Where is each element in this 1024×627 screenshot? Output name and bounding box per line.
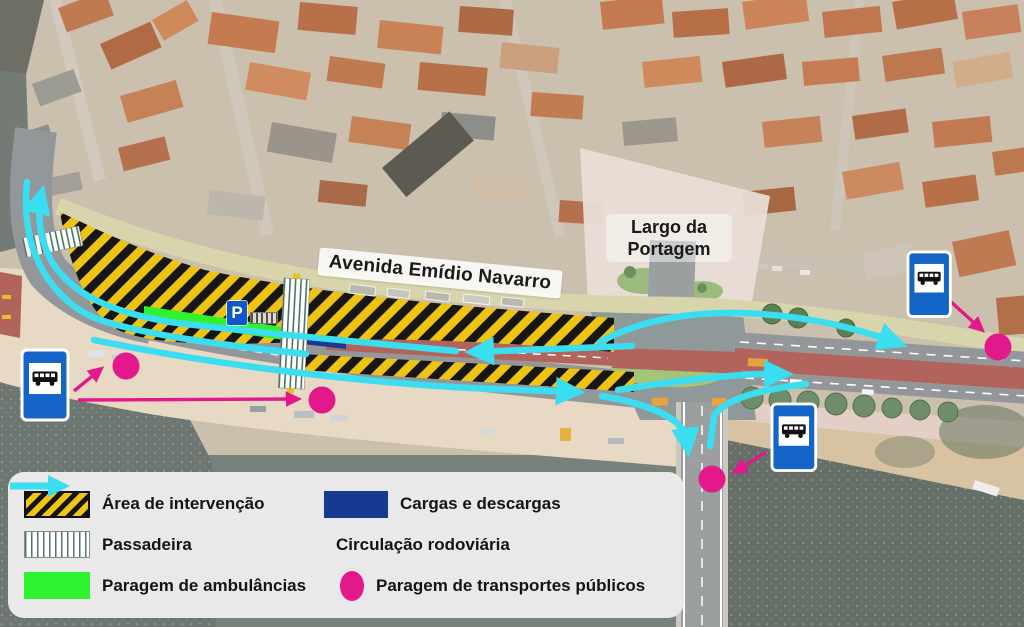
transit-stop-marker: [309, 387, 336, 414]
bus-stop-sign: [907, 251, 952, 318]
legend: Área de intervenção Cargas e descargas P…: [8, 472, 684, 618]
intervention-map: Avenida Emídio Navarro Largo da Portagem…: [0, 0, 1024, 627]
parking-sign: P: [227, 301, 247, 325]
legend-label: Cargas e descargas: [400, 494, 561, 514]
parking-sign-note: [250, 312, 278, 324]
legend-item-loading: Cargas e descargas: [324, 484, 680, 524]
transit-stop-marker: [985, 334, 1012, 361]
square-label-largo: Largo da Portagem: [606, 214, 732, 262]
crosswalk-swatch: [24, 531, 90, 558]
ambulance-swatch: [24, 572, 90, 599]
legend-item-crosswalk: Passadeira: [24, 525, 324, 565]
bus-stop-sign: [21, 349, 70, 422]
bus-stop-sign: [771, 403, 818, 472]
legend-item-traffic: Circulação rodoviária: [324, 525, 680, 565]
legend-label: Paragem de transportes públicos: [376, 576, 645, 596]
legend-label: Área de intervenção: [102, 494, 265, 514]
legend-label: Circulação rodoviária: [336, 535, 510, 555]
transit-stop-marker: [699, 466, 726, 493]
square-label-line2: Portagem: [606, 238, 732, 260]
legend-label: Paragem de ambulâncias: [102, 576, 306, 596]
legend-label: Passadeira: [102, 535, 192, 555]
loading-swatch: [324, 491, 388, 518]
square-label-line1: Largo da: [606, 216, 732, 238]
transit-stop-marker: [113, 353, 140, 380]
transit-stop-icon: [340, 571, 364, 601]
legend-item-transit: Paragem de transportes públicos: [324, 566, 680, 606]
legend-item-ambulance: Paragem de ambulâncias: [24, 566, 324, 606]
